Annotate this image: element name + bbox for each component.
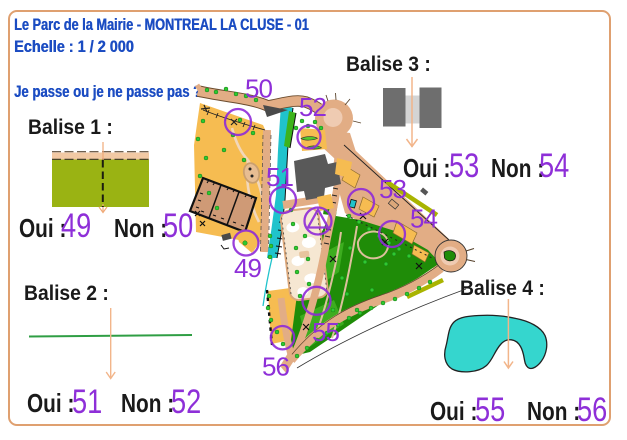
svg-text:56: 56 (262, 352, 290, 382)
svg-text:51: 51 (266, 162, 294, 192)
svg-text:49: 49 (234, 253, 262, 283)
svg-text:53: 53 (379, 174, 407, 204)
svg-text:52: 52 (299, 92, 327, 122)
svg-text:55: 55 (312, 317, 340, 347)
svg-text:50: 50 (245, 74, 273, 104)
svg-text:54: 54 (410, 204, 438, 234)
